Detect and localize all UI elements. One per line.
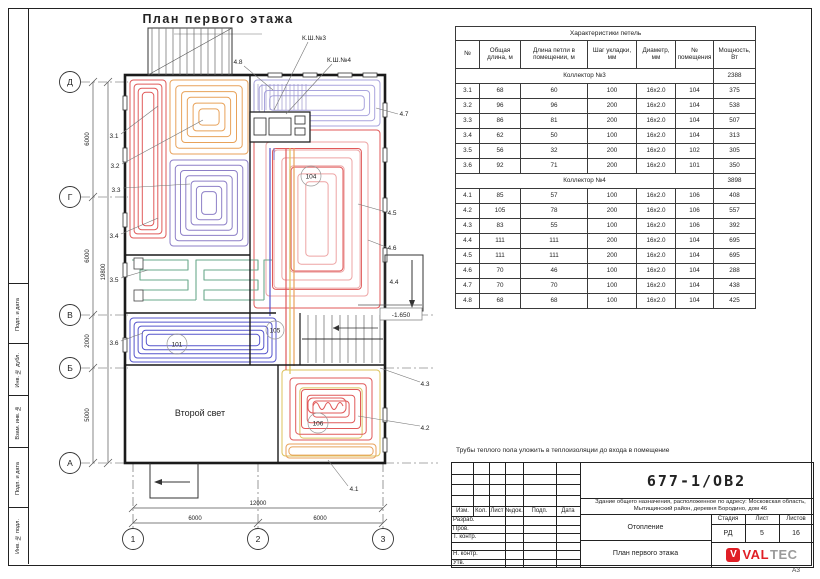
table-cell: 50 — [521, 129, 588, 144]
table-cell: 105 — [480, 204, 521, 219]
table-cell: Мощность, Вт — [714, 41, 756, 69]
table-cell: 101 — [676, 159, 714, 174]
svg-text:3.4: 3.4 — [109, 233, 118, 240]
table-cell: 70 — [521, 279, 588, 294]
table-cell: 106 — [676, 204, 714, 219]
stamp-label: Подп. и дата — [15, 462, 21, 495]
svg-text:К.Ш.№4: К.Ш.№4 — [327, 57, 351, 64]
sheets-total: 16 — [779, 524, 813, 542]
table-cell: 71 — [521, 159, 588, 174]
table-cell: 100 — [588, 84, 637, 99]
table-cell: 3.1 — [456, 84, 480, 99]
table-cell: 62 — [480, 129, 521, 144]
table-cell: 16x2.0 — [637, 234, 676, 249]
table-row: 4.1855710016x2.0106408 — [456, 189, 756, 204]
table-cell: 104 — [676, 114, 714, 129]
svg-text:6000: 6000 — [85, 132, 91, 146]
table-cell: Диаметр, мм — [637, 41, 676, 69]
table-cell: 200 — [588, 144, 637, 159]
table-header-row: №Общая длина, мДлина петли в помещении, … — [456, 41, 756, 69]
table-cell: 16x2.0 — [637, 159, 676, 174]
table-cell: 408 — [714, 189, 756, 204]
svg-text:2000: 2000 — [85, 334, 91, 348]
stamp-label: Инв. № подл. — [15, 519, 21, 554]
svg-text:4.7: 4.7 — [399, 111, 408, 118]
table-cell: № — [456, 41, 480, 69]
sheet-title: План первого этажа — [580, 540, 711, 567]
table-cell: 438 — [714, 279, 756, 294]
table-cell: 104 — [676, 294, 714, 309]
table-cell: 507 — [714, 114, 756, 129]
tb-sig-label — [453, 542, 503, 551]
table-cell: Шаг укладки, мм — [588, 41, 637, 69]
tb-header-cell: Подп. — [523, 506, 556, 516]
svg-text:6000: 6000 — [313, 516, 327, 522]
table-cell: 4.4 — [456, 234, 480, 249]
table-cell: 3.3 — [456, 114, 480, 129]
table-cell: 313 — [714, 129, 756, 144]
table-cell: 16x2.0 — [637, 144, 676, 159]
stamp-label: Взам. инв. № — [15, 405, 21, 440]
table-cell: 86 — [480, 114, 521, 129]
table-cell: 200 — [588, 249, 637, 264]
coil-room-31 — [130, 80, 166, 238]
table-row: 4.411111120016x2.0104695 — [456, 234, 756, 249]
elevation-mark: -1.650 — [358, 305, 422, 320]
svg-text:4.2: 4.2 — [420, 425, 429, 432]
table-row: 3.5563220016x2.0102305 — [456, 144, 756, 159]
table-cell: 3.6 — [456, 159, 480, 174]
table-cell: 392 — [714, 219, 756, 234]
heater-zigzag — [308, 398, 346, 413]
table-cell: 375 — [714, 84, 756, 99]
coil-big-inner — [266, 142, 368, 296]
coil-room-35 — [132, 260, 272, 300]
table-row: 3.3868120016x2.0104507 — [456, 114, 756, 129]
svg-text:4.3: 4.3 — [420, 381, 429, 388]
svg-text:3.1: 3.1 — [109, 133, 118, 140]
valtec-shield-icon: V — [726, 548, 740, 562]
table-cell: 83 — [480, 219, 521, 234]
coil-room-32 — [170, 80, 248, 154]
table-cell: 111 — [521, 249, 588, 264]
table-cell: 100 — [588, 294, 637, 309]
svg-text:2: 2 — [256, 534, 261, 544]
table-cell: 100 — [588, 189, 637, 204]
table-cell: 106 — [676, 189, 714, 204]
table-cell: Коллектор №4 — [456, 174, 714, 189]
table-cell: 106 — [676, 219, 714, 234]
table-cell: 16x2.0 — [637, 219, 676, 234]
svg-text:4.5: 4.5 — [387, 210, 396, 217]
table-row: 3.1686010016x2.0104375 — [456, 84, 756, 99]
table-cell: 200 — [588, 99, 637, 114]
table-cell: 200 — [588, 204, 637, 219]
table-cell: 3.5 — [456, 144, 480, 159]
table-cell: 111 — [521, 234, 588, 249]
table-cell: Коллектор №3 — [456, 69, 714, 84]
sheet-label: Лист — [745, 514, 779, 524]
tb-sig-label: Разраб. — [453, 516, 503, 525]
floor-plan: План первого этажа 6000 6000 2000 5000 1… — [28, 8, 448, 553]
table-cell: Общая длина, м — [480, 41, 521, 69]
svg-text:1: 1 — [131, 534, 136, 544]
table-cell: 104 — [676, 84, 714, 99]
svg-text:6000: 6000 — [188, 516, 202, 522]
table-row: 3.2969620016x2.0104538 — [456, 99, 756, 114]
table-cell: 60 — [521, 84, 588, 99]
table-cell: 111 — [480, 234, 521, 249]
table-cell: 57 — [521, 189, 588, 204]
table-cell: 200 — [588, 159, 637, 174]
table-cell: Длина петли в помещении, м — [521, 41, 588, 69]
porch — [150, 463, 198, 498]
coil-room-36 — [130, 318, 276, 362]
table-cell: 104 — [676, 249, 714, 264]
table-cell: 4.1 — [456, 189, 480, 204]
table-cell: 96 — [480, 99, 521, 114]
tb-header-cell: Лист — [489, 506, 505, 516]
table-cell: 16x2.0 — [637, 294, 676, 309]
stamp-cell: Подп. и дата — [8, 283, 28, 344]
table-cell: 4.8 — [456, 294, 480, 309]
table-row: 3.6927120016x2.0101350 — [456, 159, 756, 174]
table-cell: 16x2.0 — [637, 264, 676, 279]
loops-table: Характеристики петель№Общая длина, мДлин… — [455, 26, 756, 309]
table-cell: 425 — [714, 294, 756, 309]
coil-room-33 — [170, 160, 248, 246]
table-cell: 288 — [714, 264, 756, 279]
table-row: 4.21057820016x2.0106557 — [456, 204, 756, 219]
collector-row: Коллектор №32388 — [456, 69, 756, 84]
table-cell: 70 — [480, 264, 521, 279]
tb-sig-label: Н. контр. — [453, 550, 503, 559]
svg-text:4.4: 4.4 — [389, 279, 398, 286]
table-cell: 104 — [676, 99, 714, 114]
doc-number: 677-1/ОВ2 — [580, 463, 813, 498]
table-cell: 16x2.0 — [637, 279, 676, 294]
table-cell: 68 — [480, 84, 521, 99]
stage-value: РД — [711, 524, 745, 542]
tb-sig-label: Утв. — [453, 559, 503, 568]
svg-text:101: 101 — [172, 342, 183, 349]
table-cell: 100 — [588, 219, 637, 234]
tb-sig-label: Пров. — [453, 525, 503, 534]
drawing-sheet: Подп. и дата Инв. № дубл. Взам. инв. № П… — [0, 0, 820, 579]
table-cell: 200 — [588, 234, 637, 249]
table-cell: 2388 — [714, 69, 756, 84]
table-row: 4.511111120016x2.0104695 — [456, 249, 756, 264]
second-light-label: Второй свет — [175, 408, 225, 418]
table-cell: 70 — [480, 279, 521, 294]
table-cell: 100 — [588, 279, 637, 294]
tb-line — [452, 495, 580, 496]
table-cell: 104 — [676, 279, 714, 294]
table-cell: 4.3 — [456, 219, 480, 234]
table-cell: № помещения — [676, 41, 714, 69]
table-cell: 200 — [588, 114, 637, 129]
stamp-cell: Взам. инв. № — [8, 395, 28, 448]
tb-header-cell: Дата — [556, 506, 580, 516]
table-row: 4.7707010016x2.0104438 — [456, 279, 756, 294]
table-row: 4.3835510016x2.0106392 — [456, 219, 756, 234]
table-cell: 85 — [480, 189, 521, 204]
tb-line — [452, 484, 580, 485]
plan-title: План первого этажа — [142, 12, 293, 26]
table-title-row: Характеристики петель — [456, 27, 756, 41]
table-cell: 92 — [480, 159, 521, 174]
table-cell: 96 — [521, 99, 588, 114]
table-cell: 104 — [676, 234, 714, 249]
svg-text:19800: 19800 — [101, 263, 107, 280]
table-row: 4.6704610016x2.0104288 — [456, 264, 756, 279]
svg-text:4.8: 4.8 — [233, 59, 242, 66]
table-cell: 16x2.0 — [637, 249, 676, 264]
table-cell: 3898 — [714, 174, 756, 189]
table-cell: 56 — [480, 144, 521, 159]
svg-text:Б: Б — [67, 363, 73, 373]
format-label: А3 — [792, 567, 800, 574]
table-cell: 305 — [714, 144, 756, 159]
table-cell: 16x2.0 — [637, 129, 676, 144]
stamp-label: Подп. и дата — [15, 298, 21, 331]
table-cell: 16x2.0 — [637, 189, 676, 204]
table-cell: 4.2 — [456, 204, 480, 219]
table-cell: 32 — [521, 144, 588, 159]
svg-text:105: 105 — [270, 328, 281, 335]
valtec-logo-val: VAL — [742, 547, 769, 562]
sheet-number: 5 — [745, 524, 779, 542]
table-cell: 78 — [521, 204, 588, 219]
collector-row: Коллектор №43898 — [456, 174, 756, 189]
table-cell: 68 — [480, 294, 521, 309]
table-cell: 16x2.0 — [637, 204, 676, 219]
svg-text:6000: 6000 — [85, 249, 91, 263]
table-cell: 46 — [521, 264, 588, 279]
stamp-label: Инв. № дубл. — [15, 353, 21, 388]
table-cell: 81 — [521, 114, 588, 129]
tb-line — [452, 474, 580, 475]
table-cell: 104 — [676, 129, 714, 144]
table-cell: 100 — [588, 264, 637, 279]
table-cell: 3.4 — [456, 129, 480, 144]
table-row: 4.8686810016x2.0104425 — [456, 294, 756, 309]
table-cell: 16x2.0 — [637, 99, 676, 114]
table-cell: Характеристики петель — [456, 27, 756, 41]
svg-text:106: 106 — [313, 421, 324, 428]
table-cell: 100 — [588, 129, 637, 144]
svg-text:-1.650: -1.650 — [392, 312, 411, 319]
table-cell: 4.5 — [456, 249, 480, 264]
tb-header-cell: №док. — [505, 506, 523, 516]
coil-big-outer — [254, 130, 380, 308]
valtec-logo-tec: TEC — [770, 547, 798, 562]
note-text: Трубы теплого пола уложить в теплоизоляц… — [456, 447, 786, 454]
object-description: Здание общего назначения, расположенное … — [580, 498, 820, 514]
title-block: Изм. Кол. Лист №док. Подп. Дата Разраб. … — [451, 462, 814, 568]
table-cell: 350 — [714, 159, 756, 174]
table-cell: 111 — [480, 249, 521, 264]
svg-text:4.1: 4.1 — [349, 486, 358, 493]
left-stamp-strip: Подп. и дата Инв. № дубл. Взам. инв. № П… — [8, 8, 28, 564]
table-cell: 102 — [676, 144, 714, 159]
svg-text:В: В — [67, 310, 73, 320]
svg-text:А: А — [67, 458, 73, 468]
sheets-label: Листов — [779, 514, 813, 524]
svg-text:12000: 12000 — [250, 501, 267, 507]
coil-room-106-inner — [290, 378, 372, 440]
table-cell: 557 — [714, 204, 756, 219]
tb-header-cell: Кол. — [473, 506, 489, 516]
stamp-cell: Подп. и дата — [8, 447, 28, 508]
svg-text:3: 3 — [381, 534, 386, 544]
stamp-cell: Инв. № подл. — [8, 507, 28, 565]
table-cell: 695 — [714, 249, 756, 264]
svg-text:3.3: 3.3 — [111, 187, 120, 194]
table-cell: 4.7 — [456, 279, 480, 294]
stairs-105 — [302, 315, 383, 363]
fixture — [134, 290, 143, 301]
table-cell: 538 — [714, 99, 756, 114]
axis-bubbles: Д Г В Б А 1 2 3 — [60, 72, 394, 550]
table-cell: 4.6 — [456, 264, 480, 279]
table-cell: 695 — [714, 234, 756, 249]
stage-label: Стадия — [711, 514, 745, 524]
table-cell: 104 — [676, 264, 714, 279]
svg-text:Д: Д — [67, 77, 73, 87]
valtec-logo: V VAL TEC — [711, 542, 813, 567]
table-cell: 16x2.0 — [637, 114, 676, 129]
svg-text:3.2: 3.2 — [110, 163, 119, 170]
table-row: 3.4625010016x2.0104313 — [456, 129, 756, 144]
svg-text:5000: 5000 — [85, 408, 91, 422]
tb-header-cell: Изм. — [452, 506, 473, 516]
stamp-cell: Инв. № дубл. — [8, 343, 28, 396]
svg-text:3.5: 3.5 — [109, 277, 118, 284]
svg-text:4.6: 4.6 — [387, 245, 396, 252]
table-cell: 55 — [521, 219, 588, 234]
table-cell: 3.2 — [456, 99, 480, 114]
table-cell: 16x2.0 — [637, 84, 676, 99]
svg-text:104: 104 — [306, 174, 317, 181]
svg-text:Г: Г — [68, 192, 73, 202]
table-cell: 68 — [521, 294, 588, 309]
tb-sig-label: Т. контр. — [453, 533, 503, 542]
svg-text:3.6: 3.6 — [109, 340, 118, 347]
fixture — [134, 258, 143, 269]
svg-text:К.Ш.№3: К.Ш.№3 — [302, 35, 326, 42]
section-title: Отопление — [580, 514, 711, 540]
entry-stairs-top — [148, 28, 232, 75]
